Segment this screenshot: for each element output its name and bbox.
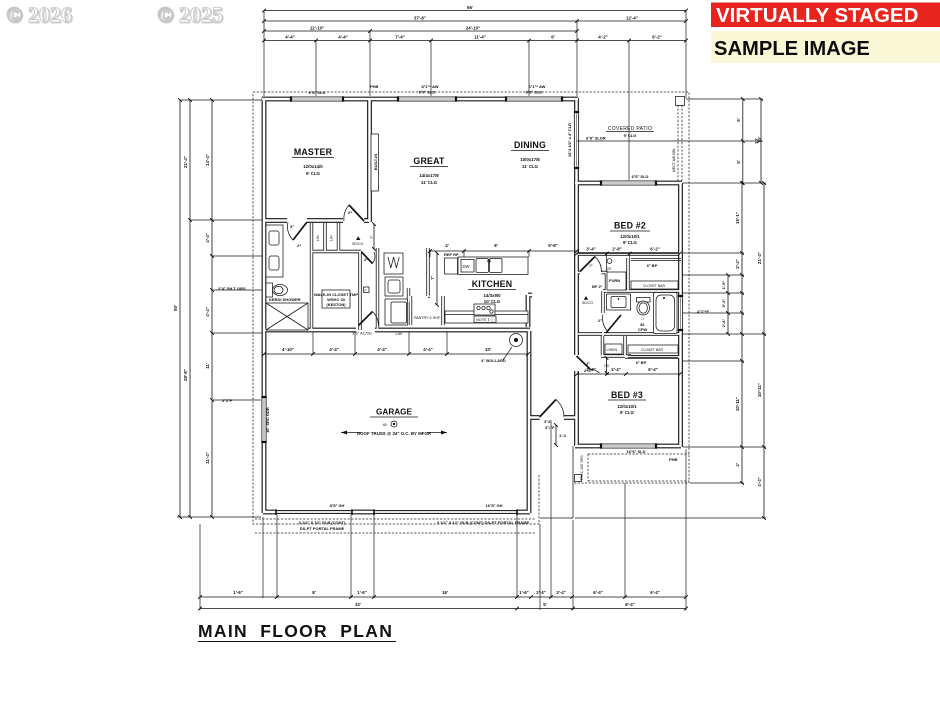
svg-text:6°1°⁶ AW: 6°1°⁶ AW [529, 84, 546, 89]
svg-text:© 2025: © 2025 [157, 2, 223, 27]
svg-text:10'-11": 10'-11" [757, 383, 762, 397]
svg-text:7': 7' [430, 276, 435, 280]
svg-text:16°8° GH: 16°8° GH [486, 503, 503, 508]
svg-text:8°1°⁶ AW: 8°1°⁶ AW [422, 84, 439, 89]
svg-text:11'-4": 11'-4" [205, 452, 210, 464]
svg-text:4'-4": 4'-4" [205, 307, 210, 316]
svg-text:12/0x10/1: 12/0x10/1 [617, 404, 637, 409]
svg-text:3°₁°F: 3°₁°F [545, 425, 555, 430]
svg-text:11' CLG: 11' CLG [421, 180, 438, 185]
svg-text:2⁸: 2⁸ [589, 264, 593, 268]
svg-text:2°: 2° [598, 318, 602, 323]
svg-text:TRCC 400 SRS: TRCC 400 SRS [580, 455, 584, 481]
svg-text:(KESTON): (KESTON) [326, 302, 346, 307]
svg-text:7'-4": 7'-4" [395, 35, 404, 40]
svg-text:1'-6": 1'-6" [519, 590, 528, 595]
svg-text:56': 56' [467, 5, 473, 10]
svg-text:6° BP: 6° BP [647, 263, 658, 268]
svg-text:4'-4": 4'-4" [205, 233, 210, 242]
svg-text:CLOSET BAR: CLOSET BAR [643, 284, 666, 288]
svg-text:8': 8' [494, 243, 498, 248]
svg-text:14/3x9/0: 14/3x9/0 [483, 293, 501, 298]
svg-text:4'-4": 4'-4" [377, 347, 386, 352]
svg-text:6°8° SLDR: 6°8° SLDR [586, 136, 606, 141]
svg-text:2'-8": 2'-8" [612, 247, 621, 252]
svg-text:6'-2": 6'-2" [652, 35, 661, 40]
svg-text:KERDI SHOWER: KERDI SHOWER [269, 297, 301, 302]
svg-text:LINEN: LINEN [607, 348, 618, 352]
svg-text:8': 8' [312, 590, 316, 595]
svg-text:LIN: LIN [316, 235, 320, 241]
svg-text:4'-4": 4'-4" [338, 35, 347, 40]
svg-text:9' CLG: 9' CLG [620, 410, 635, 415]
svg-text:21'-4": 21'-4" [757, 252, 762, 264]
svg-text:2'-4": 2'-4" [721, 319, 726, 328]
svg-text:MASTER: MASTER [294, 147, 333, 157]
svg-text:4" BOLLARD: 4" BOLLARD [481, 358, 506, 363]
svg-text:CFW: CFW [638, 327, 647, 332]
svg-text:BF 2°: BF 2° [592, 284, 603, 289]
svg-text:2⁸: 2⁸ [348, 210, 352, 215]
svg-text:© 2026: © 2026 [6, 2, 72, 27]
svg-text:16°4 1/2° x 4° CLR: 16°4 1/2° x 4° CLR [567, 123, 572, 157]
svg-text:3'-4": 3'-4" [556, 590, 565, 595]
svg-text:37'-8": 37'-8" [414, 16, 426, 21]
svg-text:4': 4' [735, 463, 740, 467]
svg-text:PANTRY 5 SHF: PANTRY 5 SHF [414, 316, 441, 320]
svg-text:10' CLG: 10' CLG [484, 299, 501, 304]
svg-text:3'-4": 3'-4" [586, 247, 595, 252]
svg-text:LAV: LAV [396, 332, 403, 336]
svg-text:1'-6": 1'-6" [357, 590, 366, 595]
svg-text:CLOSET BAR: CLOSET BAR [641, 348, 664, 352]
svg-text:SD/CO: SD/CO [352, 242, 364, 246]
svg-text:9' CLG: 9' CLG [306, 171, 321, 176]
svg-text:BED #3: BED #3 [611, 390, 643, 400]
svg-text:60: 60 [383, 423, 387, 427]
svg-text:REF RP: REF RP [444, 252, 459, 257]
svg-text:6'-4": 6'-4" [650, 590, 659, 595]
svg-text:3°: 3° [290, 224, 294, 229]
svg-text:2°8: 2°8 [604, 364, 609, 368]
svg-text:16': 16' [442, 590, 448, 595]
svg-text:4'-4": 4'-4" [757, 477, 762, 486]
svg-text:8°8° GH: 8°8° GH [330, 503, 345, 508]
svg-text:11': 11' [205, 363, 210, 369]
svg-text:28'-8": 28'-8" [183, 369, 188, 381]
svg-text:3 1/2" X 12" GLB (CONT) DS-PT: 3 1/2" X 12" GLB (CONT) DS-PT PORTAL FRA… [437, 520, 530, 525]
svg-text:32': 32' [355, 602, 361, 607]
svg-text:FURN: FURN [609, 278, 620, 283]
svg-text:6'-2": 6'-2" [650, 247, 659, 252]
svg-text:14/4x17/8: 14/4x17/8 [419, 173, 439, 178]
svg-text:6': 6' [551, 35, 555, 40]
svg-text:ROOF TRUSS @ 24" O.C. BY MFGR: ROOF TRUSS @ 24" O.C. BY MFGR [357, 431, 432, 436]
svg-text:2'-4": 2'-4" [735, 259, 740, 268]
svg-text:MECT AW DBL: MECT AW DBL [672, 148, 676, 172]
svg-text:SAMPLE IMAGE: SAMPLE IMAGE [714, 38, 870, 60]
svg-text:5'-8": 5'-8" [548, 243, 557, 248]
svg-text:6°6° SLD: 6°6° SLD [526, 90, 543, 95]
svg-text:PHB: PHB [370, 84, 379, 89]
svg-text:DW: DW [463, 264, 470, 269]
svg-text:VIRTUALLY STAGED: VIRTUALLY STAGED [716, 4, 918, 27]
svg-text:24'-10": 24'-10" [466, 26, 480, 31]
svg-text:5': 5' [736, 160, 741, 164]
svg-text:9' CLG: 9' CLG [623, 240, 638, 245]
svg-text:6°6° SLD: 6°6° SLD [309, 90, 326, 95]
svg-text:LIN: LIN [330, 235, 334, 241]
svg-text:1'-6": 1'-6" [233, 590, 242, 595]
svg-text:2D: 2D [607, 267, 612, 271]
svg-text:12'-4": 12'-4" [626, 16, 638, 21]
svg-text:4'-10": 4'-10" [282, 347, 294, 352]
svg-text:2'-4": 2'-4" [611, 367, 620, 372]
svg-text:16° SRC GDR: 16° SRC GDR [265, 407, 270, 433]
svg-text:10': 10' [757, 137, 762, 143]
svg-text:15'-1": 15'-1" [735, 212, 740, 224]
svg-text:5°2°F: 5°2°F [222, 398, 233, 403]
svg-text:KITCHEN: KITCHEN [472, 279, 513, 289]
svg-text:11' CLG: 11' CLG [522, 164, 539, 169]
svg-text:NOTE 1 ⓘ: NOTE 1 ⓘ [476, 317, 495, 322]
svg-text:BED #2: BED #2 [614, 221, 646, 231]
svg-text:2⁸: 2⁸ [364, 257, 368, 262]
svg-text:GARAGE: GARAGE [376, 408, 412, 417]
svg-text:2⁴: 2⁴ [370, 235, 374, 239]
svg-text:5'-3": 5'-3" [721, 299, 726, 308]
svg-text:11'-4": 11'-4" [474, 35, 486, 40]
svg-text:GREAT: GREAT [413, 156, 445, 166]
svg-text:21'-4": 21'-4" [183, 156, 188, 168]
svg-text:12/0x10/1: 12/0x10/1 [620, 234, 640, 239]
svg-text:5': 5' [543, 602, 547, 607]
svg-text:12'-10": 12'-10" [310, 26, 324, 31]
svg-text:8'-4": 8'-4" [625, 602, 634, 607]
svg-text:SD/CO: SD/CO [582, 301, 593, 305]
svg-text:16°6° SLD: 16°6° SLD [627, 449, 646, 454]
svg-text:10': 10' [485, 347, 491, 352]
svg-text:DS-PT PORTAL FRAME: DS-PT PORTAL FRAME [300, 526, 345, 531]
svg-text:9' CLG: 9' CLG [624, 133, 637, 138]
svg-text:50': 50' [173, 305, 178, 311]
svg-text:1'-3: 1'-3 [559, 433, 567, 438]
svg-text:1'-9": 1'-9" [721, 281, 726, 290]
svg-text:DINING: DINING [514, 140, 546, 150]
svg-text:6'-4": 6'-4" [593, 590, 602, 595]
svg-text:2°: 2° [586, 361, 590, 366]
svg-text:3'-4": 3'-4" [586, 367, 595, 372]
svg-text:4'-4": 4'-4" [285, 35, 294, 40]
svg-text:6°6° SLD: 6°6° SLD [419, 90, 436, 95]
svg-text:3 1/2" X 10" GLB (CONT): 3 1/2" X 10" GLB (CONT) [299, 520, 346, 525]
svg-text:10'-11": 10'-11" [735, 397, 740, 411]
svg-text:4'-4": 4'-4" [329, 347, 338, 352]
svg-text:6°6° SLD: 6°6° SLD [632, 174, 649, 179]
svg-text:10/0x17/8: 10/0x17/8 [520, 157, 540, 162]
svg-text:F: F [365, 289, 367, 293]
svg-text:5': 5' [736, 118, 741, 122]
svg-text:2⁴: 2⁴ [297, 243, 301, 248]
svg-text:14'-4": 14'-4" [205, 154, 210, 166]
svg-text:4'-2": 4'-2" [598, 35, 607, 40]
svg-text:4': 4' [445, 243, 449, 248]
svg-text:4'-4": 4'-4" [423, 347, 432, 352]
svg-text:MAIN FLOOR PLAN: MAIN FLOOR PLAN [198, 621, 393, 641]
svg-text:2'-4": 2'-4" [536, 590, 545, 595]
svg-text:COVERED PATIO: COVERED PATIO [608, 126, 652, 132]
svg-text:BUILT-IN: BUILT-IN [373, 154, 378, 171]
svg-text:12/0x14/0: 12/0x14/0 [303, 164, 323, 169]
svg-text:6° BP: 6° BP [636, 360, 647, 365]
svg-text:6'-4": 6'-4" [648, 367, 657, 372]
svg-text:PHB: PHB [669, 457, 678, 462]
